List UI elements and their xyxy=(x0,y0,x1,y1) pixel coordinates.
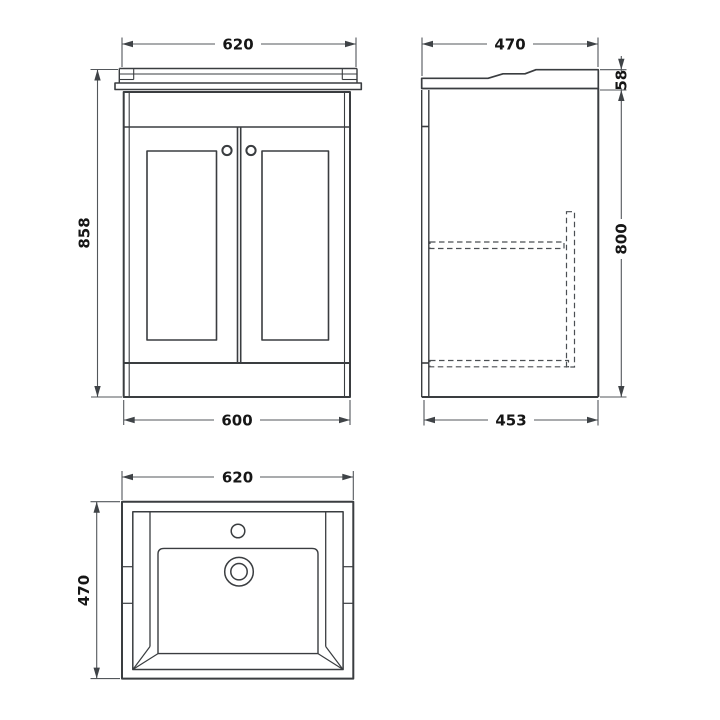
side-hidden-shelf-lines xyxy=(430,212,575,367)
drawing-canvas: 620 xyxy=(0,0,720,720)
side-basin-height-label: 58 xyxy=(612,70,630,91)
plan-dim-width: 620 xyxy=(122,469,353,501)
right-door-knob xyxy=(246,146,255,155)
front-basin-top xyxy=(115,69,361,90)
front-cabinet xyxy=(124,92,350,397)
side-cabinet-height-label: 800 xyxy=(612,223,630,254)
left-door-knob xyxy=(222,146,231,155)
front-width-top-label: 620 xyxy=(222,36,253,54)
side-depth-top-label: 470 xyxy=(494,36,525,54)
side-depth-bottom-label: 453 xyxy=(495,412,526,430)
plan-basin xyxy=(122,502,353,679)
front-width-bottom-label: 600 xyxy=(221,412,252,430)
side-cabinet xyxy=(422,89,599,398)
hidden-bottom-panel xyxy=(430,361,569,367)
side-dim-heights: 58 800 xyxy=(600,56,630,397)
plan-width-label: 620 xyxy=(222,469,253,487)
hidden-back-void xyxy=(567,212,575,367)
front-dim-width-bottom: 600 xyxy=(124,400,350,430)
side-dim-depth-bottom: 453 xyxy=(424,400,598,430)
waste-inner-ring xyxy=(231,564,247,580)
technical-drawing-vanity-unit: 620 xyxy=(0,0,720,720)
front-countertop-edge xyxy=(115,83,361,90)
front-view: 620 xyxy=(76,36,362,430)
front-height-label: 858 xyxy=(76,217,94,248)
tap-hole xyxy=(231,524,245,538)
side-basin-profile xyxy=(422,70,599,89)
side-view: 470 58 xyxy=(422,36,631,430)
front-dim-width-top: 620 xyxy=(122,36,356,68)
hidden-shelf xyxy=(430,242,564,249)
plan-depth-label: 470 xyxy=(75,575,93,606)
plan-view: 620 470 xyxy=(75,469,354,679)
plan-dim-depth: 470 xyxy=(75,502,120,679)
front-dim-height: 858 xyxy=(76,70,123,398)
